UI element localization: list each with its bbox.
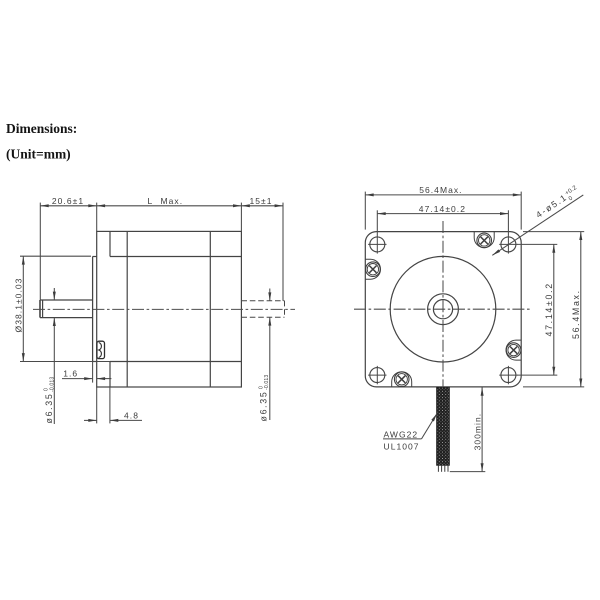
svg-text:UL1007: UL1007 xyxy=(384,442,420,452)
svg-text:+0.2: +0.2 xyxy=(564,185,578,197)
svg-text:Dimensions:: Dimensions: xyxy=(6,121,77,136)
svg-text:ø6.35: ø6.35 xyxy=(44,393,54,424)
svg-text:1.6: 1.6 xyxy=(63,369,78,379)
svg-text:47.14±0.2: 47.14±0.2 xyxy=(544,282,554,336)
svg-text:L: L xyxy=(148,196,154,206)
svg-text:15±1: 15±1 xyxy=(249,196,272,206)
svg-text:300min.: 300min. xyxy=(473,413,483,451)
svg-text:Max.: Max. xyxy=(161,196,184,206)
svg-text:-0.013: -0.013 xyxy=(264,375,270,390)
svg-text:Ø38.1±0.03: Ø38.1±0.03 xyxy=(13,278,23,333)
svg-text:56.4Max.: 56.4Max. xyxy=(571,289,581,339)
svg-text:56.4Max.: 56.4Max. xyxy=(419,185,462,195)
svg-text:20.6±1: 20.6±1 xyxy=(52,196,84,206)
svg-text:-0.013: -0.013 xyxy=(49,377,55,392)
svg-text:ø6.35: ø6.35 xyxy=(259,391,269,422)
svg-text:4.8: 4.8 xyxy=(124,410,139,420)
svg-text:(Unit=mm): (Unit=mm) xyxy=(6,147,71,162)
svg-text:AWG22: AWG22 xyxy=(384,429,419,439)
svg-text:47.14±0.2: 47.14±0.2 xyxy=(419,204,466,214)
